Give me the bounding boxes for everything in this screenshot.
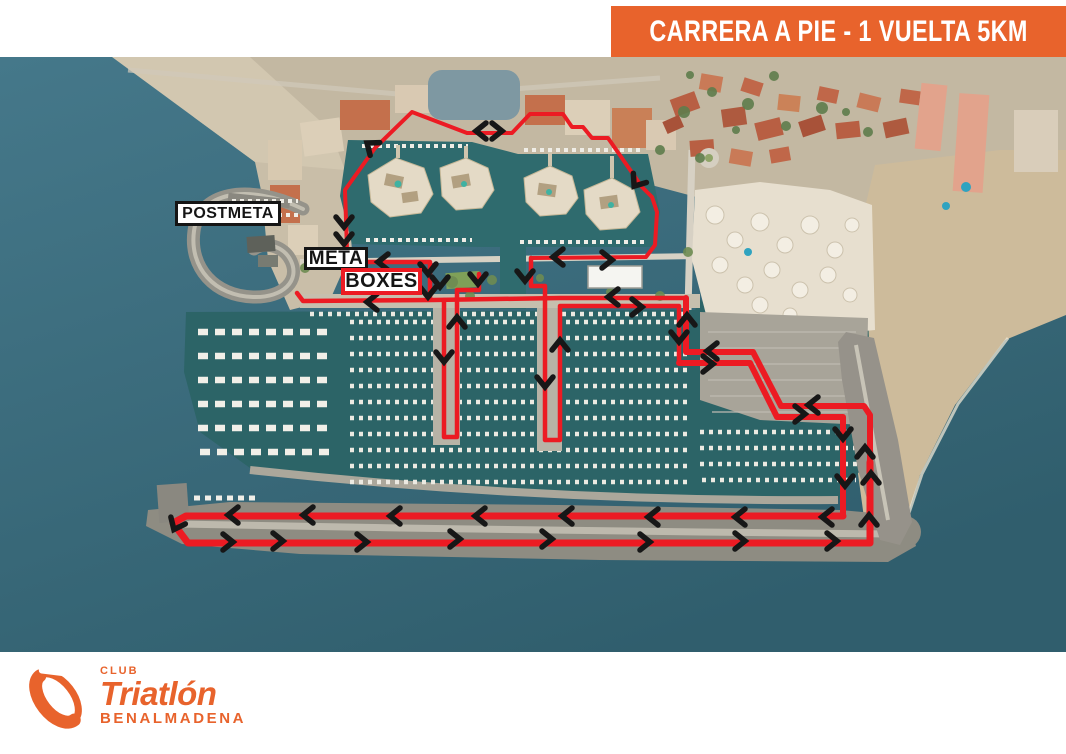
postmeta-label: POSTMETA: [175, 201, 281, 226]
direction-arrow: [336, 234, 352, 244]
meta-label: META: [304, 247, 368, 270]
route-segment-breakwater-loop: [173, 462, 870, 543]
logo-city: BENALMADENA: [100, 711, 246, 728]
club-logo: CLUB Triatlón BENALMADENA: [20, 656, 246, 738]
logo-name: Triatlón: [100, 677, 246, 711]
boxes-label: BOXES: [341, 268, 422, 295]
race-route: [0, 0, 1066, 754]
triathlon-swoosh-icon: [20, 656, 94, 738]
page-title: CARRERA A PIE - 1 VUELTA 5KM: [649, 15, 1027, 49]
title-banner: CARRERA A PIE - 1 VUELTA 5KM: [611, 6, 1066, 57]
direction-arrow: [602, 252, 612, 268]
course-map: POSTMETA META BOXES: [0, 0, 1066, 754]
route-segment-east-out: [679, 363, 843, 516]
